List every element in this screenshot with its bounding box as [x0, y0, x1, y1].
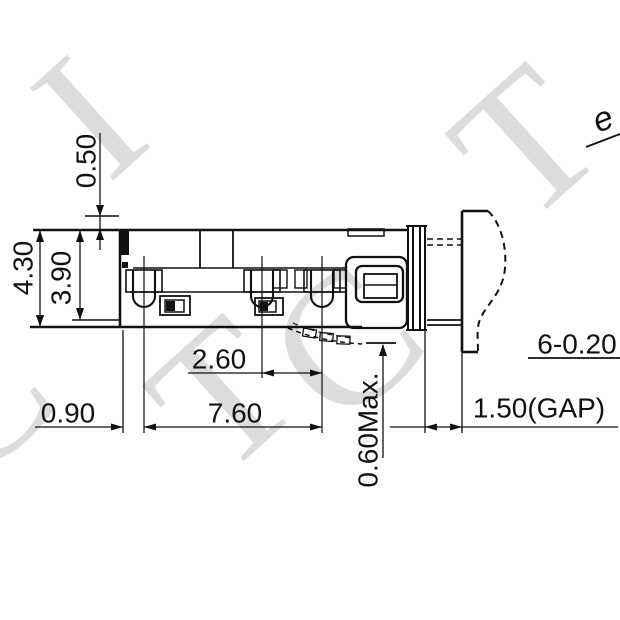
dim-label-pin-pitch: 2.60 [192, 344, 247, 375]
arrow [450, 424, 462, 431]
engineering-drawing-page: T I C T C T [0, 0, 620, 620]
arrow [310, 370, 322, 377]
corner-mark: e [586, 98, 620, 147]
dimensions: 0.50 4.30 3.90 2.60 0.90 7.60 0.60Max. 1… [8, 133, 620, 488]
dim-label-pin1-to-pin3: 7.60 [208, 398, 263, 429]
arrow [379, 344, 387, 356]
latch-inner [364, 274, 397, 298]
front-flange [406, 225, 427, 330]
arrow [36, 315, 44, 327]
arrow [262, 370, 274, 377]
dim-label-inner-height: 3.90 [46, 251, 77, 306]
arrow [111, 424, 123, 431]
lead-dash-lower [288, 328, 362, 344]
arrow [96, 205, 104, 216]
latch-housing [346, 257, 407, 328]
pocket-step-b [295, 270, 307, 288]
outline-lines [30, 216, 408, 327]
pin-2 [244, 256, 280, 378]
corner-glyph-e: e [587, 98, 619, 140]
latch-mid [356, 266, 403, 302]
mating-part [427, 211, 505, 352]
connector-body [121, 229, 384, 292]
dim-label-mating-gap: 1.50(GAP) [473, 393, 605, 424]
dim-label-edge-to-pin1: 0.90 [41, 398, 96, 429]
dimension-labels: 0.50 4.30 3.90 2.60 0.90 7.60 0.60Max. 1… [8, 134, 617, 488]
extension-lines [123, 330, 462, 433]
left-shield-bar [121, 231, 129, 255]
solder-tab-1 [160, 296, 190, 315]
dim-label-top-clearance: 0.50 [71, 134, 102, 189]
pin-1 [126, 256, 162, 433]
arrow [76, 308, 84, 320]
tab-fill [166, 301, 175, 311]
arrow [36, 230, 44, 242]
dim-label-hole-spec: 6-0.20 [537, 329, 616, 360]
tab-fill [260, 302, 268, 311]
solder-tab-2 [255, 298, 283, 315]
arrow [310, 424, 322, 431]
mating-profile-dashed [478, 211, 506, 352]
connector-side-view-drawing: 0.50 4.30 3.90 2.60 0.90 7.60 0.60Max. 1… [0, 0, 620, 620]
dim-label-lead-standoff: 0.60Max. [353, 372, 384, 487]
arrow [76, 230, 84, 242]
left-shield-chip [122, 262, 128, 268]
dim-label-overall-height: 4.30 [8, 241, 39, 296]
arrow [425, 424, 437, 431]
arrow [144, 424, 156, 431]
